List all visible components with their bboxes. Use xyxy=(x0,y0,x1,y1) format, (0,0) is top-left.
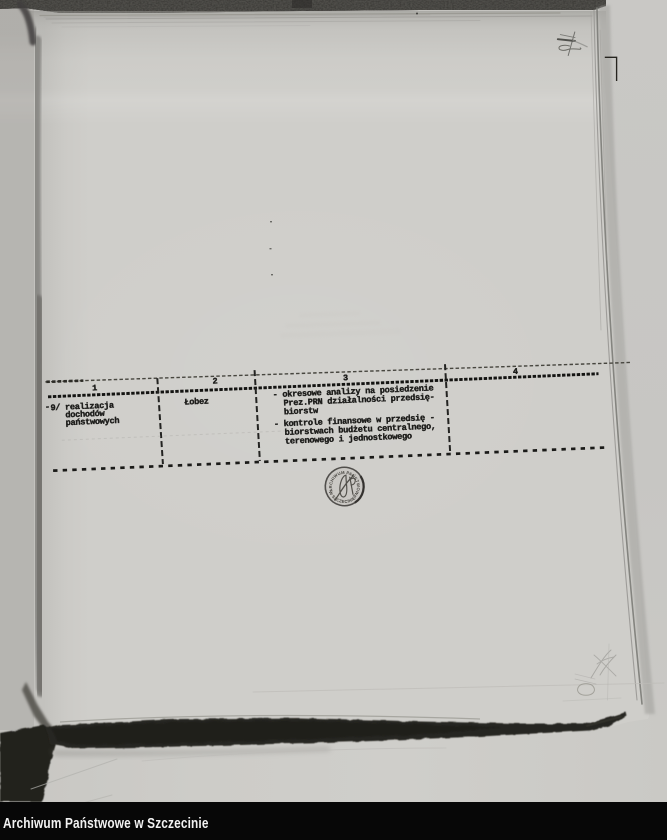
svg-text:4: 4 xyxy=(513,367,519,377)
svg-text:-: - xyxy=(45,402,50,412)
svg-text:państwowych: państwowych xyxy=(66,416,120,428)
svg-text:Łobez: Łobez xyxy=(184,397,209,408)
svg-text:3: 3 xyxy=(343,373,349,383)
svg-text:biorstw: biorstw xyxy=(284,406,320,417)
svg-text:1: 1 xyxy=(92,383,98,393)
svg-text:2: 2 xyxy=(212,376,218,386)
